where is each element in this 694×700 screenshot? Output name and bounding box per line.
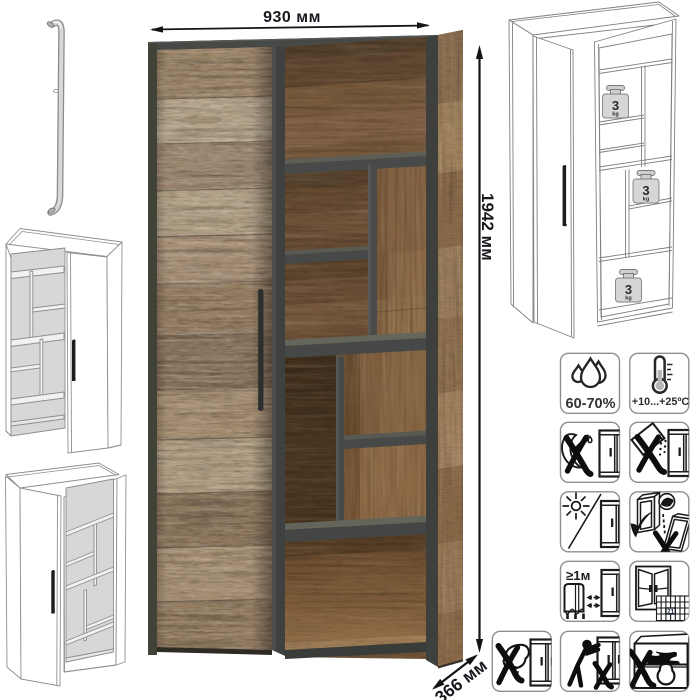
svg-text:60-70%: 60-70% xyxy=(566,396,616,412)
svg-text:+10...+25ºC: +10...+25ºC xyxy=(632,396,690,408)
svg-text:1942 мм: 1942 мм xyxy=(478,193,497,261)
svg-text:≥1м: ≥1м xyxy=(566,568,590,583)
svg-text:930 мм: 930 мм xyxy=(263,9,321,26)
svg-text:21: 21 xyxy=(667,609,675,616)
